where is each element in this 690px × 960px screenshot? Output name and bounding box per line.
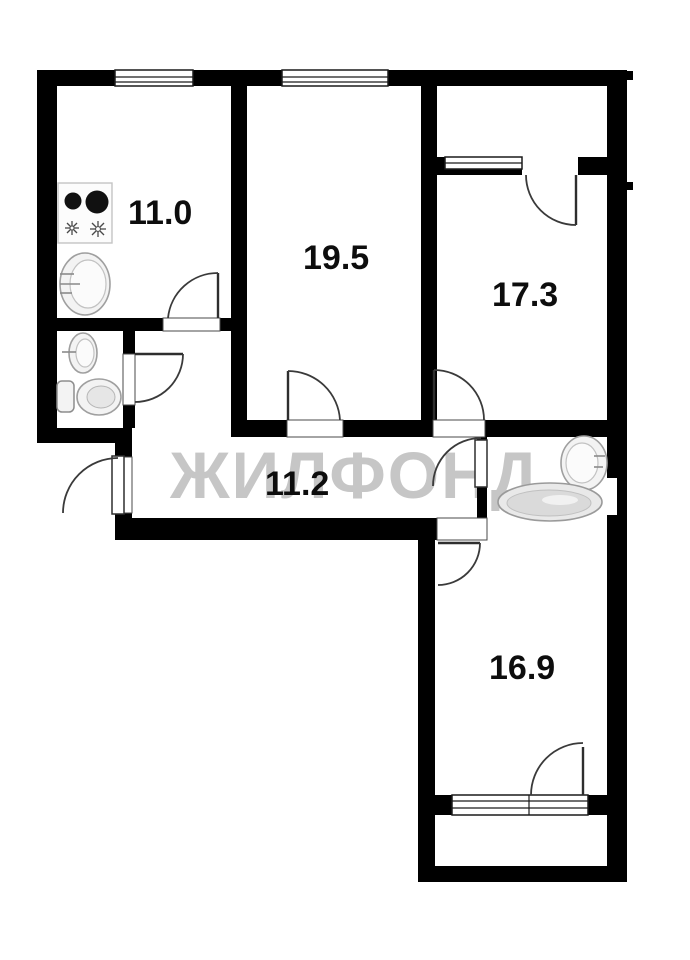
kitchen-door-opening xyxy=(163,318,220,331)
wall-window-stub-left xyxy=(435,795,452,815)
kitchen-door-arc xyxy=(168,273,218,318)
kitchen-sink-icon xyxy=(60,253,110,315)
wall-balcony-stub-left xyxy=(437,157,445,175)
bathroom-door-leaf xyxy=(475,440,487,487)
living-door-opening xyxy=(287,420,343,437)
wc-door-arc xyxy=(135,354,183,402)
bathroom-sink-icon xyxy=(561,436,607,490)
wall-tick-top xyxy=(627,71,633,80)
wall-balcony-bottom xyxy=(418,866,627,882)
wall-entry-upper xyxy=(115,443,132,457)
bedroom-lower-balcony-window xyxy=(452,795,588,815)
wc-door-opening xyxy=(123,354,135,405)
living-window xyxy=(282,70,388,86)
wall-hall-bottom xyxy=(115,518,437,540)
floor-plan-drawing xyxy=(0,0,690,960)
room-area-label-bedroom-upper: 17.3 xyxy=(492,278,558,312)
wall-left xyxy=(37,86,57,443)
wall-balcony-stub-right xyxy=(578,157,607,175)
fixtures xyxy=(57,183,607,521)
wall-window-stub-right xyxy=(588,795,607,815)
wall-hall-top-c xyxy=(485,420,607,437)
bedroom-lower-door-arc xyxy=(438,543,480,585)
room-area-label-hallway: 11.2 xyxy=(265,467,329,501)
wall-tick-mid xyxy=(625,182,633,190)
wall-wc-bottom xyxy=(37,428,132,443)
floor-plan: ЖИЛФОНД xyxy=(0,0,690,960)
wall-kitchen-living xyxy=(231,86,247,420)
kitchen-window xyxy=(115,70,193,86)
wall-bedroom-lower-left xyxy=(418,518,435,882)
wall-hall-top-a xyxy=(231,420,287,437)
room-area-label-kitchen: 11.0 xyxy=(128,196,192,230)
wall-wc-lower xyxy=(123,405,135,428)
windows xyxy=(115,70,588,815)
wall-niche xyxy=(607,478,617,515)
bedroom-lower-door-opening xyxy=(437,518,487,540)
bedroom-upper-door-arc xyxy=(434,370,484,420)
wall-bath-lower xyxy=(477,486,487,518)
wall-hall-top-b xyxy=(343,420,433,437)
balcony-upper-door-arc xyxy=(526,175,576,225)
bathtub-icon xyxy=(498,483,602,521)
toilet-icon xyxy=(57,379,121,415)
wall-kitchen-bottom-left xyxy=(57,318,163,331)
wall-wc-upper xyxy=(123,331,135,354)
living-door-arc xyxy=(288,371,340,420)
bedroom-upper-door-opening xyxy=(433,420,485,437)
wall-kitchen-bottom-right xyxy=(220,318,247,331)
wc-sink-icon xyxy=(62,333,97,373)
stove-icon xyxy=(58,183,112,243)
entrance-door-leaf xyxy=(112,456,124,514)
wall-balcony-under-window xyxy=(445,169,522,175)
balcony-lower-door-arc xyxy=(531,743,583,795)
room-area-label-living-room: 19.5 xyxy=(303,241,369,275)
entrance-door-arc xyxy=(63,458,118,513)
room-area-label-bedroom-lower: 16.9 xyxy=(489,651,555,685)
bathroom-door-arc xyxy=(433,438,481,486)
